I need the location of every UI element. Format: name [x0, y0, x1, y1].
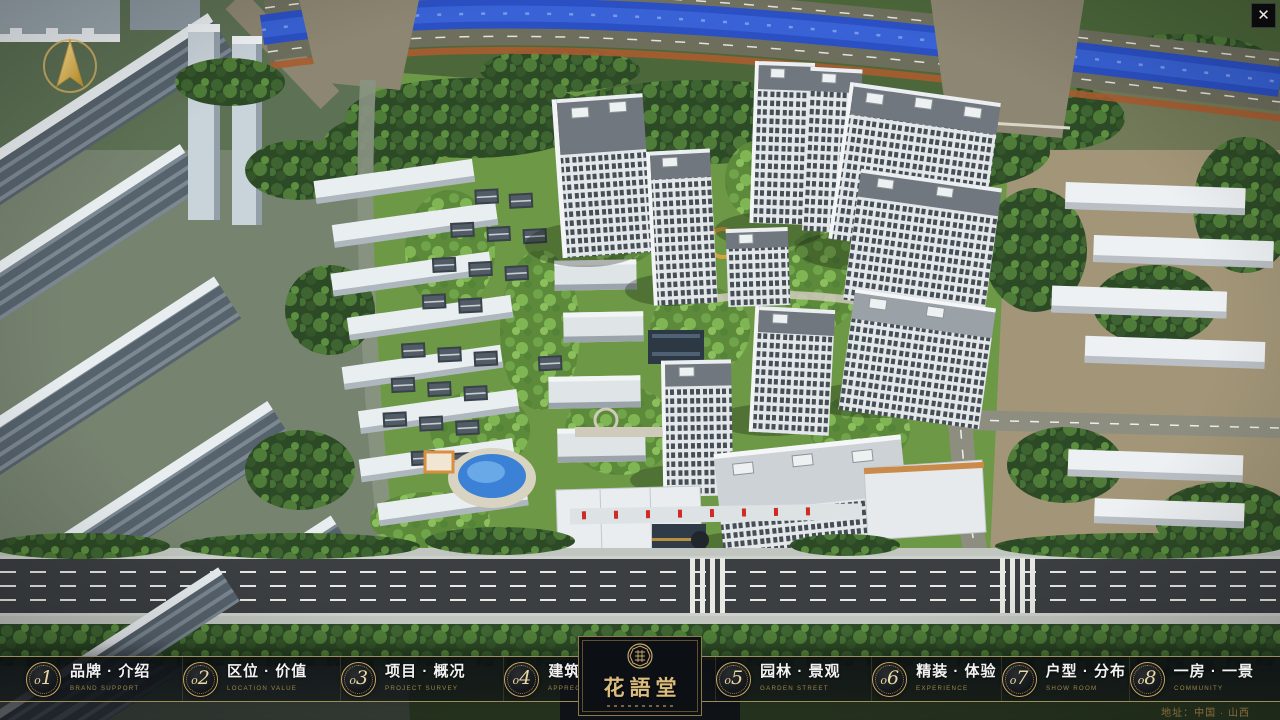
nav-number-badge: o3 [341, 662, 376, 697]
nav-item-room-view[interactable]: o8 一房 · 一景 COMMUNITY [1129, 657, 1254, 701]
nav-item-sublabel: SHOW ROOM [1046, 685, 1097, 692]
masterplan-3d-view[interactable] [0, 0, 1280, 720]
nav-item-project-overview[interactable]: o3 项目 · 概况 PROJECT SURVEY [340, 657, 503, 701]
nav-item-label: 项目 · 概况 [385, 664, 503, 681]
nav-item-label: 区位 · 价值 [227, 664, 340, 681]
app-window: ✕ o1 品牌 · 介绍 BRAND SUPPORT o2 区位 · 价值 LO… [0, 0, 1280, 720]
nav-item-number: o2 [191, 669, 210, 688]
nav-item-number: o7 [1010, 669, 1029, 688]
nav-item-number: o1 [34, 669, 53, 688]
nav-item-label: 精装 · 体验 [916, 664, 1000, 681]
nav-number-badge: o5 [716, 662, 751, 697]
masterplan-art [0, 0, 1280, 720]
logo-tagline-rule [607, 705, 673, 707]
nav-item-label: 品牌 · 介绍 [70, 664, 182, 681]
nav-item-sublabel: PROJECT SURVEY [385, 685, 458, 692]
nav-number-badge: o7 [1002, 662, 1037, 697]
nav-item-sublabel: GARDEN STREET [760, 685, 829, 692]
nav-item-number: o6 [880, 669, 899, 688]
nav-item-sublabel: EXPERIENCE [916, 685, 968, 692]
close-button[interactable]: ✕ [1251, 3, 1276, 28]
nav-item-floorplan-distribution[interactable]: o7 户型 · 分布 SHOW ROOM [1001, 657, 1129, 701]
nav-item-number: o4 [513, 669, 532, 688]
nav-item-label: 户型 · 分布 [1046, 664, 1129, 681]
nav-item-location-value[interactable]: o2 区位 · 价值 LOCATION VALUE [182, 657, 340, 701]
nav-number-badge: o2 [183, 662, 218, 697]
nav-item-number: o5 [724, 669, 743, 688]
nav-item-label: 一房 · 一景 [1174, 664, 1254, 681]
nav-item-garden-landscape[interactable]: o5 园林 · 景观 GARDEN STREET [715, 657, 871, 701]
nav-item-label: 园林 · 景观 [760, 664, 871, 681]
logo-title: 花語堂 [599, 672, 682, 702]
project-logo: 花語堂 [578, 636, 702, 716]
nav-number-badge: o6 [872, 662, 907, 697]
nav-item-sublabel: BRAND SUPPORT [70, 685, 139, 692]
nav-item-sublabel: COMMUNITY [1174, 685, 1224, 692]
nav-number-badge: o1 [26, 662, 61, 697]
nav-item-number: o3 [349, 669, 368, 688]
project-address: 地址：中国 · 山西 [1161, 704, 1250, 719]
nav-item-interior-experience[interactable]: o6 精装 · 体验 EXPERIENCE [871, 657, 1000, 701]
nav-number-badge: o4 [504, 662, 539, 697]
nav-item-number: o8 [1138, 669, 1157, 688]
logo-seal-icon [627, 643, 653, 669]
compass-north-icon [40, 36, 100, 96]
nav-item-sublabel: LOCATION VALUE [227, 685, 297, 692]
nav-number-badge: o8 [1130, 662, 1165, 697]
nav-item-brand-intro[interactable]: o1 品牌 · 介绍 BRAND SUPPORT [26, 657, 182, 701]
